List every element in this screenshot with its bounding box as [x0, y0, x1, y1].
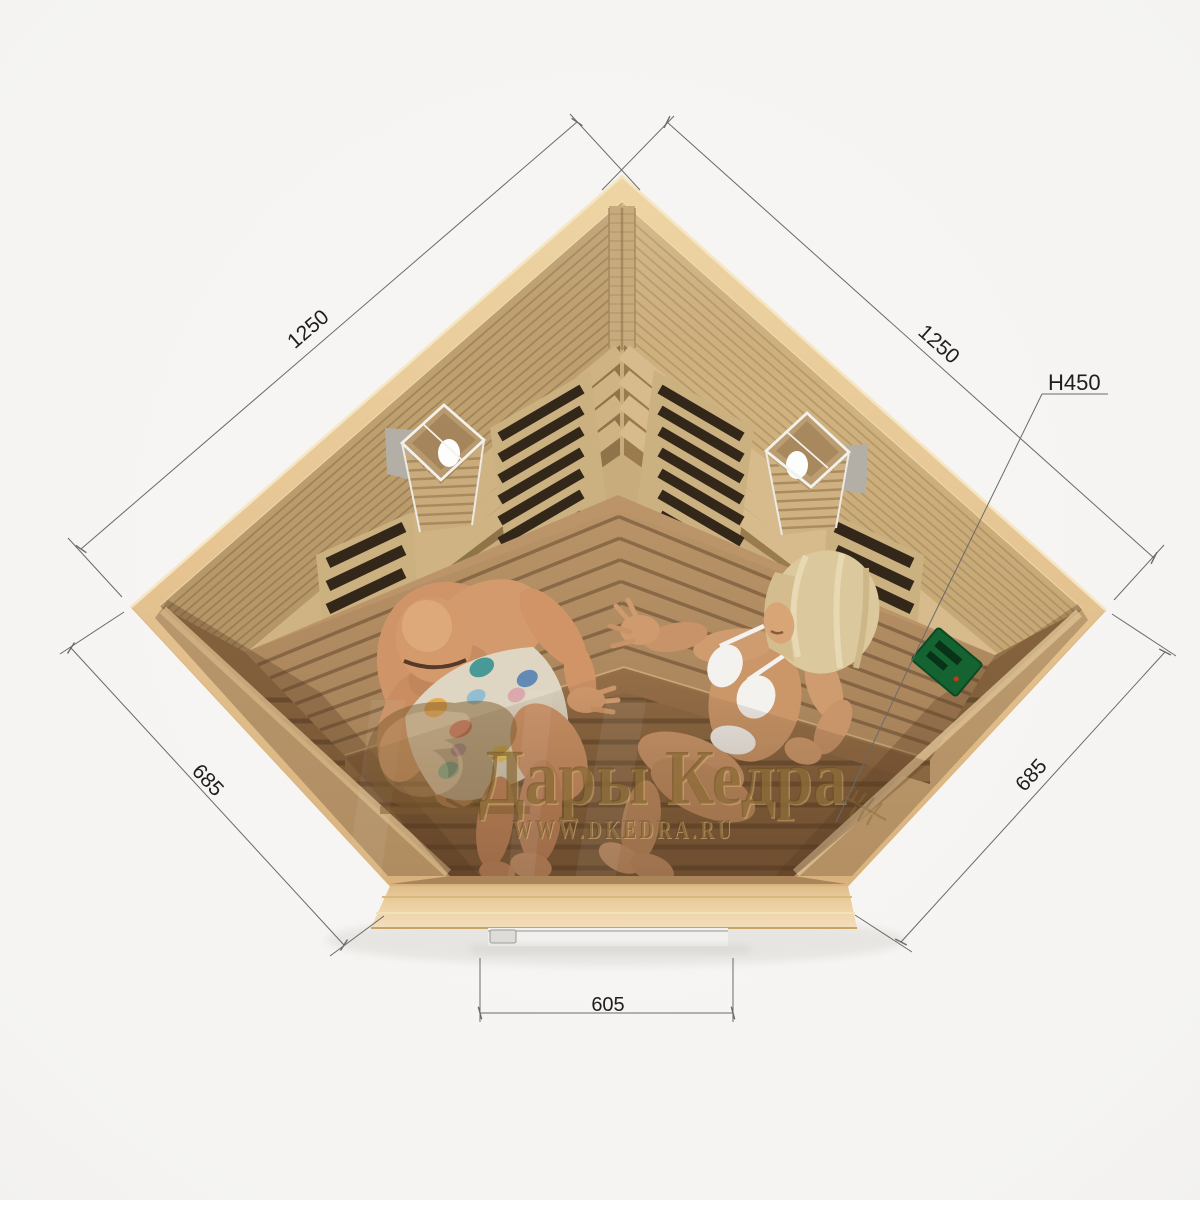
svg-text:Дары Кедра: Дары Кедра	[478, 734, 846, 821]
svg-text:WWW.DKEDRA.RU: WWW.DKEDRA.RU	[512, 815, 734, 844]
svg-text:H450: H450	[1048, 370, 1101, 395]
svg-text:605: 605	[591, 994, 624, 1016]
